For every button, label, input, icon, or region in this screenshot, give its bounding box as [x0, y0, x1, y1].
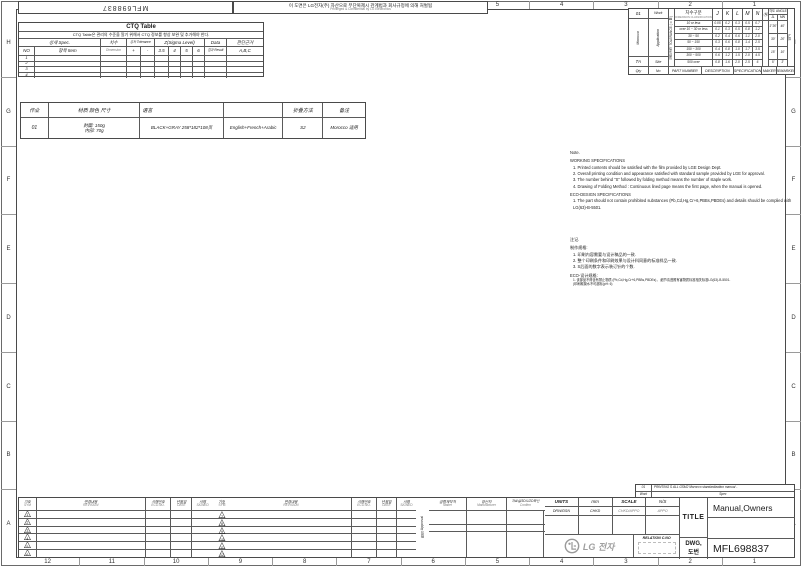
cell: 치수구분 DIMENSION CLASSIFICATION 10 or less…	[675, 9, 713, 66]
empty-cell	[192, 527, 213, 534]
angle-value: 30'	[769, 34, 778, 46]
empty-cell	[171, 542, 192, 549]
grid-columns-bottom: 121110987654321	[16, 558, 786, 566]
empty-cell	[227, 62, 263, 67]
empty-cell	[181, 67, 193, 72]
manufacturer-col-header: 양산처Manufacturer	[467, 498, 507, 510]
maker-header: MAKER	[762, 67, 777, 75]
ctq-spec-header: 상세 Spec.	[19, 39, 101, 46]
notes-english: Note. WORKING SPECIFICATIONS 1. Printed …	[570, 150, 794, 211]
empty-cell	[377, 519, 397, 526]
chkd-label: CHKD	[579, 507, 613, 515]
cell: Morocco Application	[629, 19, 668, 57]
angle-value: 3'	[778, 60, 787, 66]
cell: DWG, 도번	[680, 538, 707, 558]
work-description: PRINTING S ALL GSM2 Morocco standardizat…	[652, 485, 794, 491]
ctq-minus-header: -	[141, 47, 155, 55]
title-block: UNITS mm SCALE N/S DRW/DSN CHKD CHKD/APP…	[545, 497, 795, 558]
appo-label: APPO	[646, 507, 679, 515]
revision-sym-cell: △5	[19, 542, 37, 549]
relation-cno-label: RELATION C.NO	[643, 536, 671, 540]
empty-cell	[37, 527, 146, 534]
empty-cell	[193, 62, 205, 67]
empty-cell	[169, 73, 181, 79]
revision-header: 변경내용REVISION	[231, 498, 352, 510]
ctq-note: CTQ Table은 관리의 수준을 알기 위해서 CTQ 정보를 항상 보완 …	[73, 33, 210, 38]
cell: UNITS mm SCALE N/S DRW/DSN CHKD CHKD/APP…	[545, 498, 680, 559]
empty-cell	[192, 511, 213, 518]
work-number: 01	[636, 485, 652, 491]
empty-cell	[146, 519, 172, 526]
confidential-stamp: 이 도면은 LG전자(주) 자산으로 무단복제시 관계법과 회사규정에 의해 처…	[233, 1, 488, 14]
empty-cell	[192, 542, 213, 549]
cell: 5' 3'	[769, 60, 787, 66]
ctq-sigma-header: Z(Sigma Level)	[155, 39, 205, 46]
spec-fold-value: S2	[283, 118, 323, 138]
empty-cell	[171, 511, 192, 518]
grid-row-label: D	[1, 284, 16, 353]
revision-sym-column-2: 기호SYM △7 △8 △9 △10 △11 △12	[213, 497, 232, 558]
empty-cell	[171, 519, 192, 526]
no-header: No	[649, 67, 669, 75]
empty-cell	[37, 511, 146, 518]
part-number-header: PART NUMBER	[669, 67, 703, 75]
angle-value: 10'	[778, 47, 787, 59]
chkd-appo-label: CHKD/APPO	[613, 507, 647, 515]
empty-cell	[127, 56, 141, 61]
revision-header: 변경내용REVISION	[37, 498, 146, 510]
ctq-title: CTQ Table	[126, 24, 156, 30]
cell: SYM	[219, 504, 226, 508]
empty-cell	[224, 103, 284, 117]
grid-row-label: H	[1, 9, 16, 78]
grid-row-label: C	[786, 353, 801, 422]
signature-row	[545, 516, 679, 535]
revision-triangle: △12	[217, 550, 227, 559]
grid-col-label: 11	[80, 558, 144, 566]
spec-work-value: 01	[21, 118, 49, 138]
qty-header: Qty	[629, 67, 649, 75]
grid-row-label: B	[786, 422, 801, 491]
empty-cell	[377, 534, 397, 541]
empty-cell	[127, 73, 141, 79]
ctq-sigma-col: 5	[181, 47, 193, 55]
empty-cell	[231, 511, 352, 518]
revision-row: △3	[19, 527, 213, 535]
confidential-en: Privileged & Confidential by LG Electron…	[330, 8, 391, 12]
tolerance-header-en: DIMENSION CLASSIFICATION	[675, 16, 712, 19]
cell: CTQ Table	[19, 23, 263, 32]
empty-cell	[205, 56, 227, 61]
apply-work-label: Work	[649, 9, 668, 18]
empty-cell	[171, 550, 192, 558]
empty-cell	[146, 534, 172, 541]
cell: CTQ Table은 관리의 수준을 알기 위해서 CTQ 정보를 항상 보완 …	[19, 32, 263, 39]
grid-col-label: 1	[723, 558, 786, 566]
cell: 01 Work	[629, 9, 668, 19]
empty-cell	[377, 550, 397, 558]
cell: 15' 10'	[769, 47, 787, 60]
empty-cell	[352, 550, 377, 558]
ctq-row: 4	[19, 73, 263, 79]
ctq-no-header: NO	[19, 47, 35, 55]
revision-row: △6	[19, 550, 213, 558]
signature-cell	[613, 516, 647, 534]
date-header: 년월일DATE	[171, 498, 192, 510]
notes-chinese: 注记. 制作规格: 1. 印刷内容需要与设计稿品的一致. 2. 整个印刷条件和印…	[570, 237, 794, 286]
empty-cell	[146, 550, 172, 558]
cell	[572, 542, 576, 549]
maker-cell	[429, 511, 467, 557]
empty-cell	[37, 519, 146, 526]
empty-cell	[231, 527, 352, 534]
empty-cell	[127, 62, 141, 67]
revision-row	[231, 511, 416, 519]
empty-cell	[205, 67, 227, 72]
revision-row: △5	[19, 542, 213, 550]
empty-cell	[231, 519, 352, 526]
revision-sym-cell: △3	[19, 527, 37, 534]
title-value-row-2	[708, 518, 795, 539]
tolerance-value: 2.5	[743, 60, 752, 66]
notes-cn-title: 注记.	[570, 237, 794, 243]
tolerance-class: L	[733, 9, 742, 21]
dwg-number-value: MFL698837	[713, 543, 769, 555]
empty-cell	[352, 542, 377, 549]
spec-fold-header: 折叠方法	[283, 103, 323, 117]
tolerance-class: J	[713, 9, 722, 21]
tolerance-angle-group: 각도 ANGLE JL MN 1°30' 40' 30' 20'	[769, 9, 788, 66]
date-header: 년월일DATE	[377, 498, 397, 510]
spec-colorsize-value: BLACK+GRAY 258*182*108页	[140, 118, 224, 138]
apply-site-value: TA	[629, 57, 649, 66]
tolerance-value: 2.0	[733, 60, 742, 66]
empty-cell	[146, 542, 172, 549]
revision-triangle: △5	[22, 542, 32, 549]
revision-sym-cell: △4	[19, 534, 37, 541]
angle-value: 20'	[778, 34, 787, 46]
grid-row-label: C	[1, 353, 16, 422]
cell: 상세 Spec. 치수 공차 Tolerance Z(Sigma Level) …	[19, 39, 263, 47]
cell: 1°30' 40'	[769, 21, 787, 34]
empty-cell	[181, 62, 193, 67]
cell: UNITS mm SCALE N/S	[545, 498, 679, 507]
empty-cell	[141, 67, 155, 72]
units-value: mm	[579, 498, 613, 506]
doc-number-rotated: MFL698837	[102, 4, 148, 11]
apply-site-label: Site	[649, 57, 668, 66]
apply-application-label: Application	[649, 19, 668, 56]
empty-cell	[155, 56, 169, 61]
revision-row: △1	[19, 511, 213, 519]
cell: Manual,Owners	[708, 498, 795, 518]
revision-triangle: △1	[22, 511, 32, 518]
revision-triangle: △3	[22, 527, 32, 534]
lg-logo-cell: LG 전자	[545, 535, 634, 557]
tolerance-remark-col: 비고	[788, 9, 794, 66]
ctq-result-header: 결과 Result	[205, 47, 227, 55]
ctq-abc-header: A,B,C	[227, 47, 263, 55]
empty-cell	[227, 56, 263, 61]
grid-rows-left: HGFEDCBA	[1, 9, 16, 558]
empty-cell	[35, 67, 101, 72]
empty-cell	[397, 534, 416, 541]
ctq-row-no: 2	[19, 62, 35, 67]
empty-cell	[352, 527, 377, 534]
revision-row	[231, 534, 416, 542]
revision-sym-cell: △2	[19, 519, 37, 526]
revision-row	[231, 550, 416, 558]
empty-cell	[227, 67, 263, 72]
empty-cell	[377, 527, 397, 534]
cell: TITLE DWG, 도번	[680, 498, 708, 559]
cell: DATE	[382, 504, 390, 508]
empty-cell	[146, 511, 172, 518]
cell: 금형제작처Maker 양산처Manufacturer 자료실/3D도/2D확인C…	[429, 498, 545, 511]
empty-cell	[763, 21, 768, 66]
cell: TA Site	[629, 57, 668, 66]
dwg-label-ko: 도번	[688, 547, 699, 556]
angle-sub-header: MN	[778, 15, 787, 20]
ctq-row-no: 1	[19, 56, 35, 61]
cell: NO 항목 Item Dimension + - 3.5 4 5 6 결과 Re…	[19, 47, 263, 56]
empty-cell	[146, 527, 172, 534]
cell: Morocco	[636, 31, 640, 45]
divider-line	[429, 524, 545, 525]
ctq-sigma-col: 4	[169, 47, 181, 55]
signature-cell	[579, 516, 613, 534]
note-line: (印刷覆膜水不可超标(pH: 6)	[570, 283, 794, 287]
title-label: TITLE	[683, 514, 705, 521]
grid-col-label: 4	[530, 558, 594, 566]
empty-cell	[37, 550, 146, 558]
empty-cell	[101, 62, 127, 67]
cell: 01 Work Morocco Application TA Site 일반공차…	[629, 9, 794, 67]
grid-col-label: 8	[273, 558, 337, 566]
cell	[568, 543, 570, 545]
cell: 2	[22, 521, 32, 525]
angle-value: 15'	[769, 47, 778, 59]
grid-row-label: A	[1, 490, 16, 558]
tolerance-class: M	[743, 9, 752, 21]
note-line: 3. S后面的数字表示装订针的个数.	[570, 264, 794, 270]
signed-header: 서명SIGNED	[397, 498, 416, 510]
empty-cell	[192, 534, 213, 541]
empty-cell	[181, 73, 193, 79]
angle-value: 5'	[769, 60, 778, 66]
empty-cell	[141, 56, 155, 61]
cell: N 0.7 1.2 2.0 2.5 3.5 4.5 6	[753, 9, 763, 66]
doc-number-top-box: MFL698837	[18, 1, 233, 14]
tolerance-range: 500 over	[675, 60, 712, 66]
empty-cell	[377, 511, 397, 518]
ctq-data-header: Data	[205, 39, 227, 46]
cell: SIGNED	[196, 504, 208, 508]
lg-logo-icon	[564, 538, 580, 554]
angle-value: 1°30'	[769, 21, 778, 33]
empty-cell	[227, 73, 263, 79]
lg-logo-text: LG 전자	[583, 540, 615, 553]
spec-work-header: 作业	[21, 103, 49, 117]
cell: L 0.3 0.5 0.6 0.8 1.0 1.5 2.0	[733, 9, 743, 66]
empty-cell	[169, 62, 181, 67]
ctq-tol-header: 공차 Tolerance	[127, 39, 155, 46]
cell: 6	[22, 553, 32, 557]
work-spec-mini-table: 01 PRINTING S ALL GSM2 Morocco standardi…	[635, 484, 795, 498]
angle-sub-header: JL	[769, 15, 778, 20]
empty-cell	[397, 550, 416, 558]
empty-cell	[193, 73, 205, 79]
empty-cell	[35, 62, 101, 67]
ctq-row-no: 3	[19, 67, 35, 72]
grid-row-label: D	[786, 284, 801, 353]
empty-cell	[101, 67, 127, 72]
cell: Application	[656, 29, 660, 47]
cell	[429, 511, 545, 557]
empty-cell	[231, 542, 352, 549]
tolerance-value: 1.6	[723, 60, 732, 66]
specification-header: SPECIFICATION	[734, 67, 763, 75]
eco-header: 시행번호ECO.NO.	[352, 498, 377, 510]
cell: 01 封面: 150g内部: 70g BLACK+GRAY 258*182*10…	[21, 118, 365, 138]
revision-row: △2	[19, 519, 213, 527]
empty-cell	[193, 56, 205, 61]
maker-block: 금형제작처Maker 양산처Manufacturer 자료실/3D도/2D확인C…	[429, 497, 546, 558]
revision-table-1: 기호SYM 변경내용REVISION 시행번호ECO.NO. 년월일DATE 서…	[18, 497, 214, 558]
grid-col-label: 12	[16, 558, 80, 566]
ctq-item-header: 항목 Item	[35, 47, 101, 55]
remarker-header: REMARKER	[777, 67, 794, 75]
sym-header: 기호SYM	[19, 498, 37, 510]
empty-cell	[101, 56, 127, 61]
cell: 각도	[769, 9, 775, 13]
approval-column: 합의 Approval	[416, 497, 430, 558]
relation-cno-cell: RELATION C.NO	[634, 535, 679, 557]
remark-label: 비고	[789, 34, 793, 40]
cell: ECO.NO.	[151, 504, 164, 508]
grid-col-label: 4	[530, 1, 594, 9]
empty-cell	[35, 73, 101, 79]
angle-title: 각도 ANGLE	[769, 10, 787, 14]
grid-row-label: E	[1, 215, 16, 284]
note-line: 1. The part should not contain prohibite…	[570, 198, 794, 211]
revision-triangle: △6	[22, 550, 32, 558]
spec-language-value: English+French+Arabic	[224, 118, 284, 138]
grid-col-label: 6	[402, 558, 466, 566]
revision-triangle: △4	[22, 534, 32, 541]
revision-row	[231, 542, 416, 550]
empty-cell	[181, 56, 193, 61]
spec-table: 作业 材质 颜色 尺寸 语言 折叠方法 备注 01 封面: 150g内部: 70…	[20, 102, 366, 139]
confirm-col-header: 자료실/3D도/2D확인Confirm	[507, 498, 544, 510]
revision-row: △4	[19, 534, 213, 542]
apply-work-value: 01	[629, 9, 649, 18]
cell: 1	[22, 513, 32, 517]
cell: 4	[22, 537, 32, 541]
cell: K 0.2 0.3 0.4 0.6 0.8 1.2 1.6	[723, 9, 733, 66]
revision-sym-cell: △6	[19, 550, 37, 558]
cell: 12	[217, 553, 227, 557]
ctq-dim-header: 치수	[101, 39, 127, 46]
signature-cell	[646, 516, 679, 534]
empty-cell	[171, 534, 192, 541]
empty-cell	[141, 62, 155, 67]
grid-row-label: G	[1, 78, 16, 147]
revision-row	[231, 519, 416, 527]
cell: TITLE	[680, 498, 707, 538]
title-value: Manual,Owners	[713, 503, 773, 513]
cell: 일반공차 TOLERANCE (±㎜)	[670, 16, 674, 59]
cell: 기호SYM 변경내용REVISION 시행번호ECO.NO. 년월일DATE 서…	[19, 498, 213, 511]
cell: SIGNED	[400, 504, 412, 508]
empty-cell	[231, 550, 352, 558]
empty-cell	[352, 511, 377, 518]
cell: M 0.5 0.8 1.1 1.4 1.7 2.0 2.5	[743, 9, 753, 66]
tolerance-value: 0.8	[713, 60, 722, 66]
drw-dsn-label: DRW/DSN	[545, 507, 579, 515]
spec-remark-header: 备注	[323, 103, 365, 117]
notes-en-title: Note.	[570, 150, 794, 156]
cell: REVISION	[83, 504, 98, 508]
empty-cell	[397, 542, 416, 549]
cell: J 0.05 0.1 0.2 0.3 0.4 0.6 0.8	[713, 9, 723, 66]
grid-col-label: 5	[466, 558, 530, 566]
grid-row-label: G	[786, 78, 801, 147]
cell: 作业 材质 颜色 尺寸 语言 折叠方法 备注	[21, 103, 365, 118]
cell: △12	[213, 550, 231, 558]
revision-table-2: 변경내용REVISION 시행번호ECO.NO. 년월일DATE 서명SIGNE…	[231, 497, 417, 558]
cell: LG 전자 RELATION C.NO	[545, 535, 679, 557]
grid-col-label: 10	[145, 558, 209, 566]
empty-cell	[397, 511, 416, 518]
angle-value: 40'	[778, 21, 787, 33]
ctq-plus-header: +	[127, 47, 141, 55]
apply-tolerance-block: 01 Work Morocco Application TA Site 일반공차…	[628, 8, 795, 75]
cell: Confirm	[520, 504, 531, 508]
ctq-reason-header: 판단근거	[227, 39, 263, 46]
grid-col-label: 7	[337, 558, 401, 566]
ctq-sigma-col: 3.5	[155, 47, 169, 55]
signed-header: 서명SIGNED	[192, 498, 213, 510]
approval-label: 합의 Approval	[420, 516, 424, 538]
cell: Manufacturer	[477, 504, 496, 508]
cell: Maker	[443, 504, 452, 508]
spec-material-value: 封面: 150g内部: 70g	[49, 118, 140, 138]
relation-cno-box	[638, 542, 676, 554]
divider-line	[429, 531, 545, 532]
description-header: DESCRIPTION	[702, 67, 734, 75]
cell: 3	[22, 529, 32, 533]
empty-cell	[155, 67, 169, 72]
empty-cell	[35, 56, 101, 61]
empty-cell	[193, 67, 205, 72]
cell: DRW/DSN CHKD CHKD/APPO APPO	[545, 507, 679, 516]
tolerance-class: N	[753, 9, 762, 21]
spec-remark-value: Morocco 适用	[323, 118, 365, 138]
empty-cell	[352, 534, 377, 541]
tolerance-value: 6	[753, 60, 762, 66]
note-line: 4. Drawing of Folding Method : Continuou…	[570, 184, 794, 190]
tolerance-default-class: Ⓝ	[763, 9, 768, 21]
grid-col-label: 3	[594, 558, 658, 566]
signature-cell	[545, 516, 579, 534]
empty-cell	[155, 62, 169, 67]
cell: 판단근거	[237, 40, 254, 45]
cell: ECO.NO.	[357, 504, 370, 508]
empty-cell	[377, 542, 397, 549]
cell: 30' 20'	[769, 34, 787, 47]
grid-col-label: 9	[209, 558, 273, 566]
